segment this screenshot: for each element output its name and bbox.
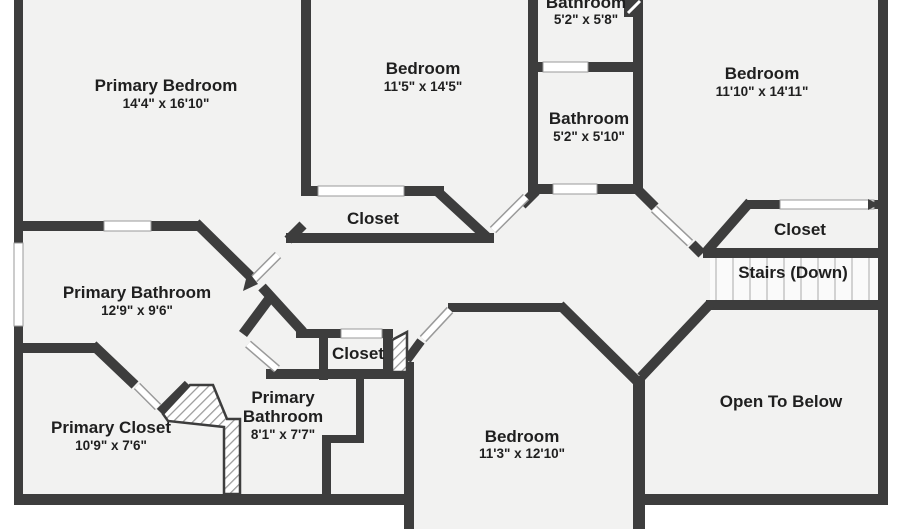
room-dims: 10'9" x 7'6"	[75, 438, 147, 453]
wall-segment	[356, 375, 364, 443]
wall-segment	[14, 494, 414, 505]
room-name: Closet	[774, 220, 826, 239]
wall-segment	[266, 369, 410, 379]
wall-segment	[448, 303, 562, 312]
room-dims: 11'5" x 14'5"	[384, 79, 463, 94]
door-gap	[104, 221, 151, 231]
wall-segment	[633, 0, 643, 190]
wall-segment	[14, 343, 98, 353]
room-label-bathroom-middle: Bathroom 5'2" x 5'10"	[549, 109, 629, 144]
room-label-closet-bedroom-right: Closet	[774, 220, 826, 239]
wall-segment	[528, 0, 538, 192]
wall-segment	[706, 300, 888, 310]
room-dims: 11'10" x 14'11"	[716, 84, 809, 99]
floor-slab	[404, 505, 645, 529]
room-label-closet-hall: Closet	[332, 344, 384, 363]
room-label-bedroom-top-middle: Bedroom 11'5" x 14'5"	[384, 59, 463, 94]
door-gap	[553, 184, 597, 194]
room-name: Bathroom	[243, 407, 323, 426]
wall-segment	[633, 494, 888, 505]
wall-segment	[322, 435, 364, 443]
wall-segment	[301, 0, 311, 196]
room-label-open-to-below: Open To Below	[720, 392, 843, 411]
room-name: Primary	[251, 388, 315, 407]
room-name: Closet	[332, 344, 384, 363]
room-name: Primary Bedroom	[95, 76, 238, 95]
room-label-primary-bathroom-2: Primary Bathroom 8'1" x 7'7"	[243, 388, 323, 442]
hatch-area	[392, 332, 407, 372]
room-dims: 5'2" x 5'8"	[554, 12, 618, 27]
room-label-stairs: Stairs (Down)	[738, 263, 848, 282]
door-gap	[543, 62, 588, 72]
room-label-bathroom-top: Bathroom 5'2" x 5'8"	[546, 0, 626, 27]
room-name: Bedroom	[386, 59, 461, 78]
door-gap	[780, 200, 874, 209]
wall-segment	[703, 248, 888, 258]
room-name: Stairs (Down)	[738, 263, 848, 282]
door-gap	[341, 329, 382, 338]
floor-plan-svg: Primary Bedroom 14'4" x 16'10" Bedroom 1…	[0, 0, 900, 529]
door-gap	[318, 186, 404, 196]
wall-segment	[286, 233, 494, 243]
room-label-bedroom-bottom: Bedroom 11'3" x 12'10"	[479, 427, 565, 461]
wall-segment	[633, 376, 645, 529]
room-dims: 8'1" x 7'7"	[251, 427, 315, 442]
room-dims: 5'2" x 5'10"	[553, 129, 625, 144]
room-name: Bathroom	[549, 109, 629, 128]
room-name: Primary Closet	[51, 418, 171, 437]
room-dims: 12'9" x 9'6"	[101, 303, 173, 318]
room-label-closet-bedroom-middle: Closet	[347, 209, 399, 228]
room-name: Bedroom	[485, 427, 560, 446]
room-name: Primary Bathroom	[63, 283, 211, 302]
wall-segment	[692, 244, 702, 254]
room-label-bedroom-top-right: Bedroom 11'10" x 14'11"	[716, 64, 809, 99]
room-name: Open To Below	[720, 392, 843, 411]
room-name: Bathroom	[546, 0, 626, 12]
window	[14, 243, 23, 326]
room-dims: 14'4" x 16'10"	[123, 96, 210, 111]
room-name: Closet	[347, 209, 399, 228]
floor-plan: Primary Bedroom 14'4" x 16'10" Bedroom 1…	[0, 0, 900, 529]
room-name: Bedroom	[725, 64, 800, 83]
wall-segment	[322, 435, 331, 499]
room-dims: 11'3" x 12'10"	[479, 446, 565, 461]
